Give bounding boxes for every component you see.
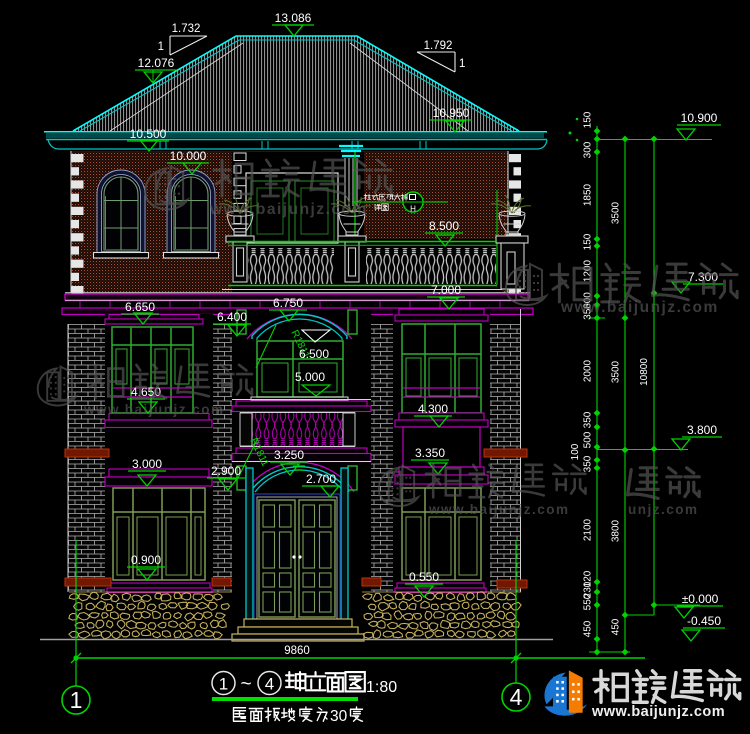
svg-text:350: 350	[583, 411, 594, 428]
svg-text:2000: 2000	[583, 359, 594, 382]
svg-text:1: 1	[70, 687, 83, 713]
svg-text:450: 450	[583, 620, 594, 637]
svg-text:12.076: 12.076	[138, 56, 175, 70]
svg-text:unjz.com: unjz.com	[628, 502, 699, 517]
svg-text:3.000: 3.000	[132, 457, 162, 471]
svg-text:8.500: 8.500	[429, 219, 459, 233]
svg-text:3500: 3500	[611, 201, 622, 224]
svg-text:1: 1	[459, 58, 465, 70]
svg-text:550: 550	[583, 593, 594, 610]
svg-text:1: 1	[219, 675, 228, 694]
svg-text:www.baijunjz.com: www.baijunjz.com	[83, 402, 225, 417]
svg-text:3.800: 3.800	[687, 423, 717, 437]
svg-text:300: 300	[583, 141, 594, 158]
svg-text:6.500: 6.500	[299, 347, 329, 361]
svg-text:10.950: 10.950	[433, 106, 470, 120]
svg-text:2.900: 2.900	[211, 464, 241, 478]
svg-text:6.400: 6.400	[217, 310, 247, 324]
svg-text:100: 100	[570, 443, 581, 460]
svg-text:3800: 3800	[611, 519, 622, 542]
svg-text:13.086: 13.086	[275, 11, 312, 25]
svg-text:450: 450	[611, 618, 622, 635]
svg-text:www.baijunjz.com: www.baijunjz.com	[560, 299, 719, 316]
svg-text:1850: 1850	[583, 183, 594, 206]
svg-text:3500: 3500	[611, 360, 622, 383]
svg-text:10800: 10800	[639, 358, 650, 386]
svg-text:0.900: 0.900	[131, 553, 161, 567]
svg-text:500: 500	[583, 431, 594, 448]
svg-text:10.000: 10.000	[170, 149, 207, 163]
svg-text:~: ~	[240, 674, 251, 695]
svg-text:150: 150	[583, 233, 594, 250]
svg-text:350: 350	[583, 455, 594, 472]
svg-text:4: 4	[265, 675, 274, 694]
svg-text:2.700: 2.700	[306, 472, 336, 486]
svg-text:www.baijunjz.com: www.baijunjz.com	[209, 201, 368, 218]
svg-text:H: H	[410, 205, 416, 214]
svg-text:±0.000: ±0.000	[682, 592, 719, 606]
svg-text:3.250: 3.250	[274, 448, 304, 462]
svg-text:1:80: 1:80	[366, 679, 397, 696]
svg-text:www.baijunjz.com: www.baijunjz.com	[428, 502, 570, 517]
svg-text:3.350: 3.350	[415, 446, 445, 460]
svg-text:1.732: 1.732	[172, 23, 201, 35]
svg-text:www.baijunjz.com: www.baijunjz.com	[591, 704, 725, 720]
svg-text:150: 150	[583, 111, 594, 128]
svg-text:1: 1	[158, 41, 164, 53]
svg-text:6.750: 6.750	[273, 296, 303, 310]
svg-text:30: 30	[330, 708, 348, 725]
svg-text:10.500: 10.500	[130, 127, 167, 141]
svg-text:-0.450: -0.450	[687, 614, 721, 628]
svg-text:7.000: 7.000	[431, 283, 461, 297]
svg-text:1.792: 1.792	[424, 40, 453, 52]
svg-text:0.550: 0.550	[409, 570, 439, 584]
svg-text:10.900: 10.900	[681, 111, 718, 125]
svg-text:6.650: 6.650	[125, 300, 155, 314]
svg-text:4.300: 4.300	[418, 402, 448, 416]
svg-text:5.000: 5.000	[295, 370, 325, 384]
svg-text:2100: 2100	[583, 518, 594, 541]
svg-text:9860: 9860	[284, 645, 310, 657]
svg-text:4: 4	[510, 684, 523, 710]
